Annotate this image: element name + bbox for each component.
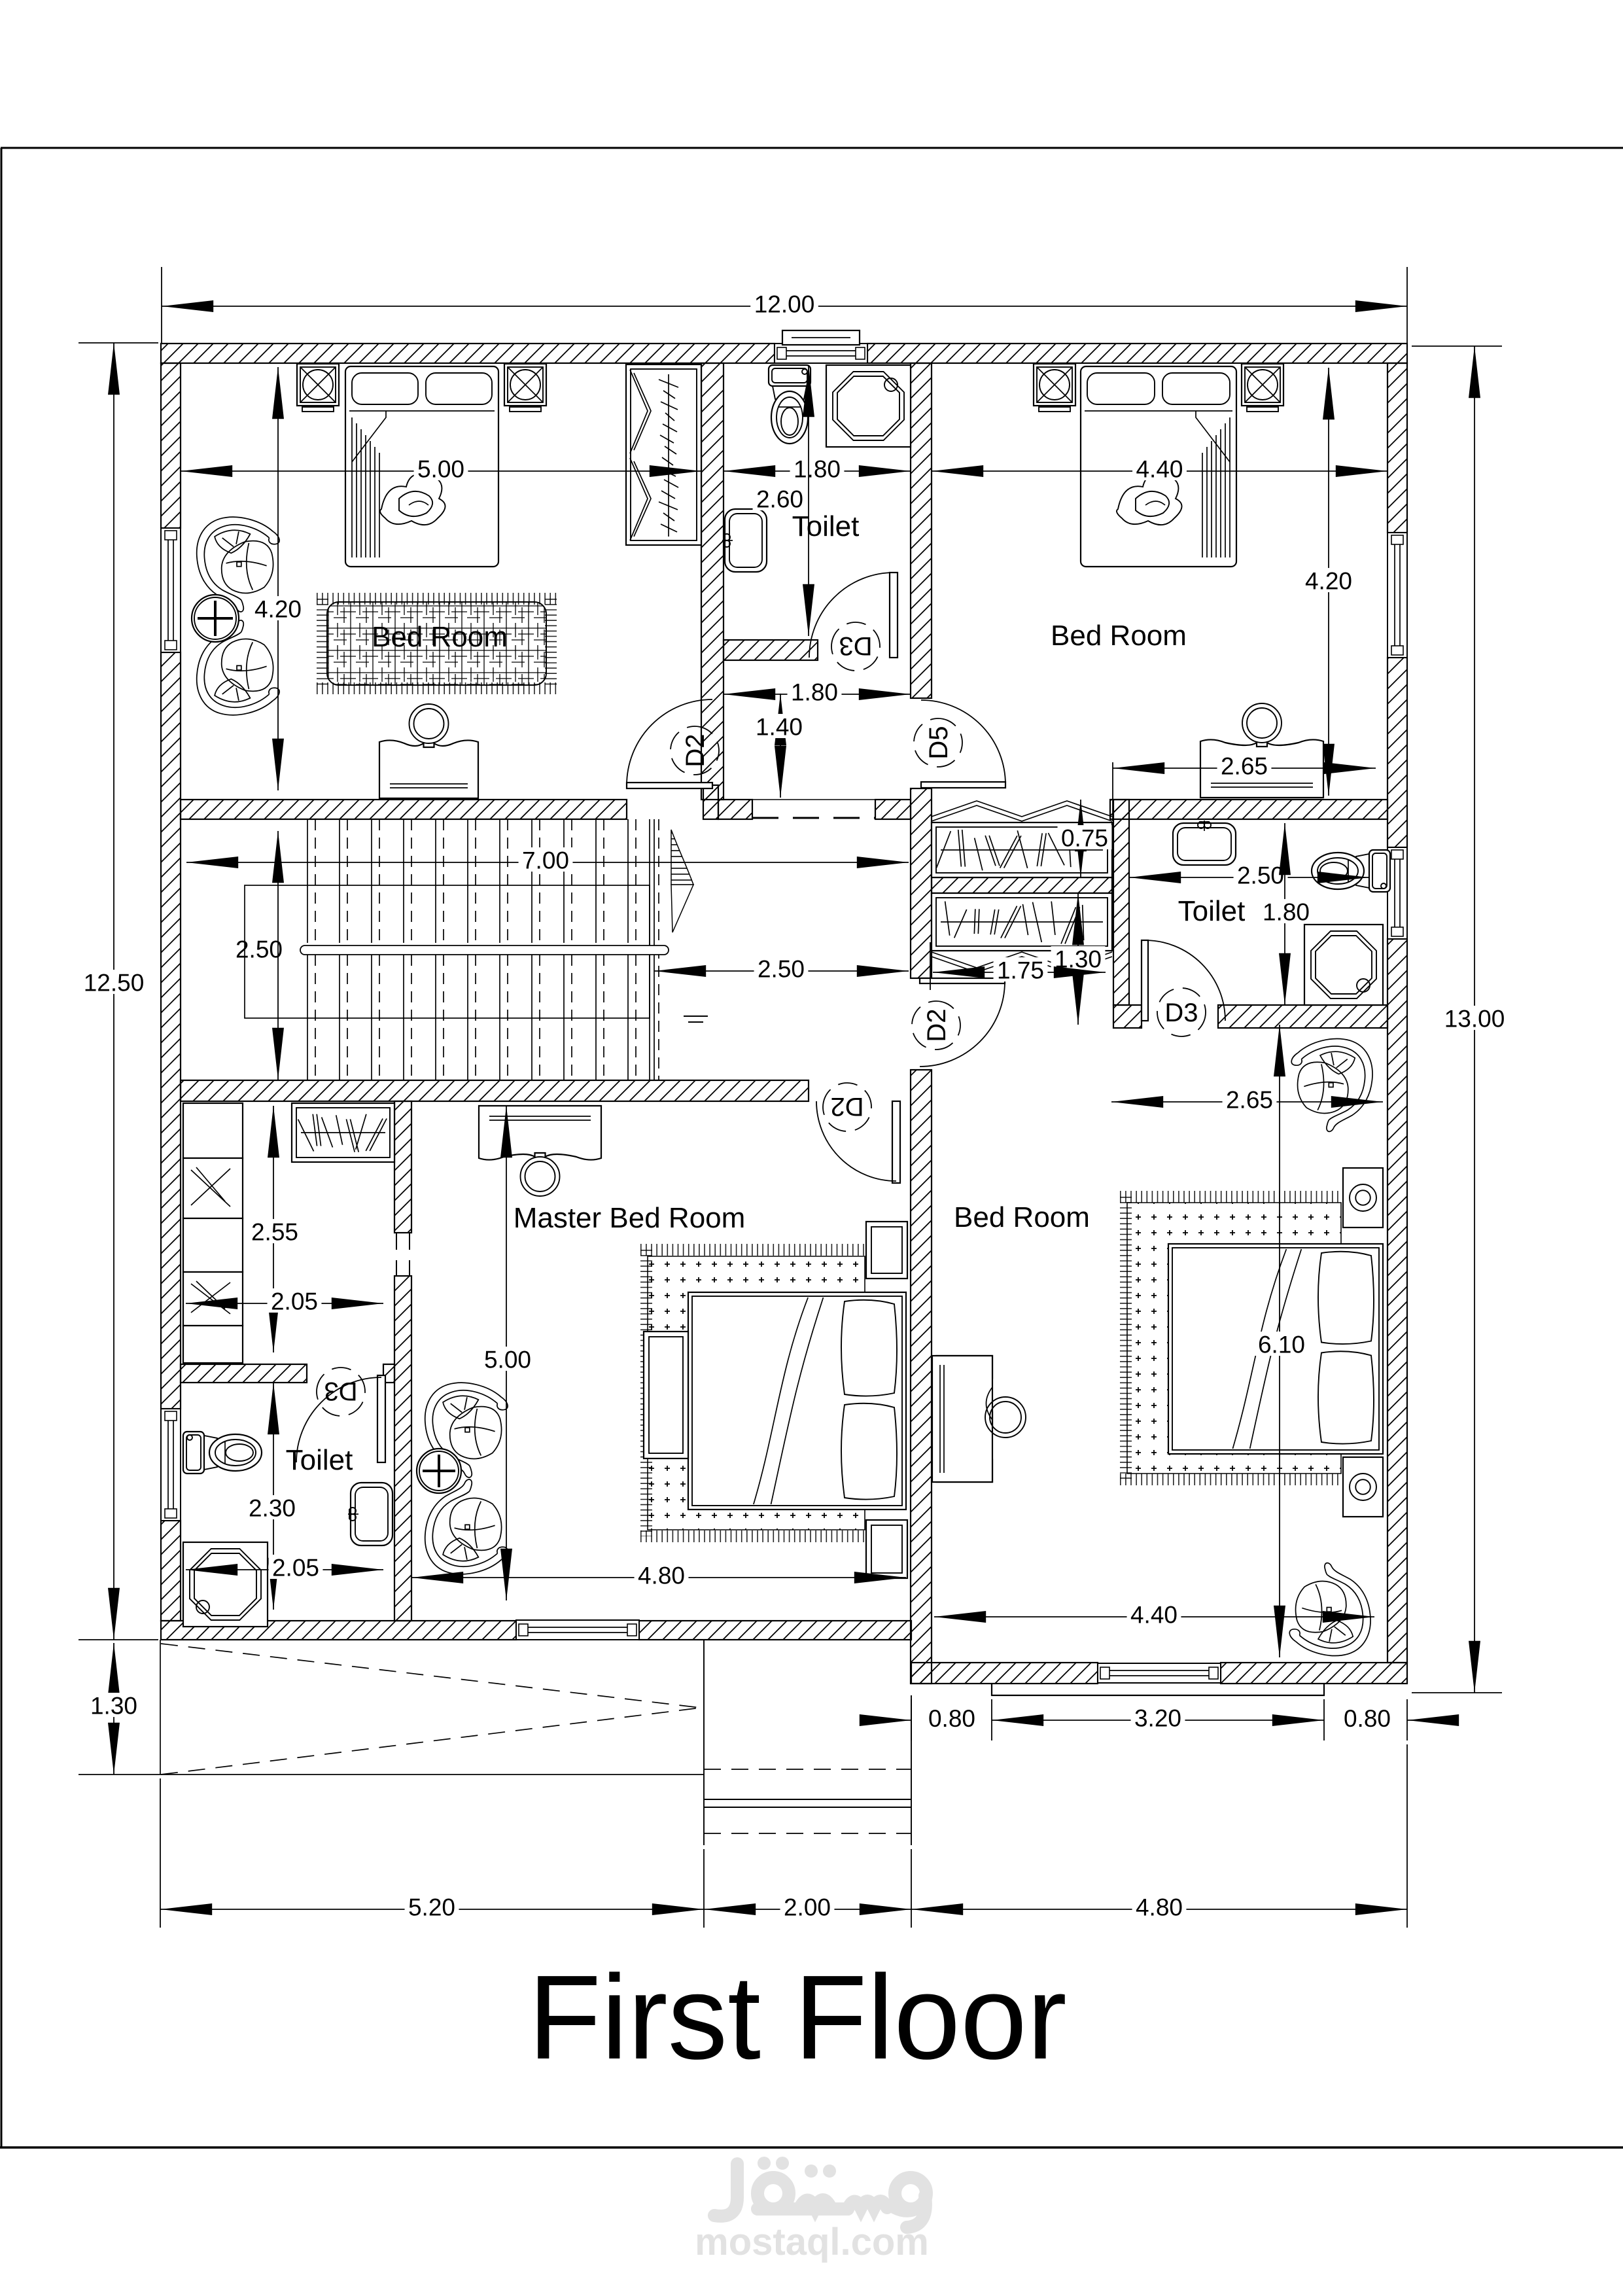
svg-text:1.80: 1.80 [1263, 899, 1310, 926]
svg-text:4.20: 4.20 [254, 596, 302, 623]
svg-text:2.65: 2.65 [1221, 753, 1268, 780]
svg-text:2.60: 2.60 [756, 486, 803, 513]
svg-text:D3: D3 [839, 631, 872, 660]
svg-text:2.50: 2.50 [236, 936, 283, 963]
svg-text:Bed Room: Bed Room [1051, 620, 1187, 652]
svg-text:12.50: 12.50 [84, 970, 145, 997]
svg-text:D5: D5 [924, 726, 953, 759]
svg-text:4.40: 4.40 [1136, 456, 1183, 483]
svg-text:12.00: 12.00 [754, 291, 815, 318]
svg-text:5.00: 5.00 [484, 1347, 531, 1373]
svg-text:1.30: 1.30 [1055, 946, 1102, 973]
svg-text:1.40: 1.40 [756, 714, 803, 741]
svg-text:5.00: 5.00 [417, 456, 464, 483]
svg-text:6.10: 6.10 [1258, 1332, 1305, 1358]
svg-text:D2: D2 [681, 733, 710, 767]
svg-text:1.30: 1.30 [90, 1693, 137, 1720]
svg-text:D2: D2 [922, 1008, 951, 1042]
svg-text:mostaql.com: mostaql.com [695, 2221, 929, 2263]
svg-text:Toilet: Toilet [286, 1444, 353, 1476]
svg-text:0.75: 0.75 [1061, 825, 1108, 852]
svg-text:D3: D3 [1164, 998, 1198, 1027]
svg-text:5.20: 5.20 [408, 1894, 455, 1921]
svg-text:0.80: 0.80 [928, 1705, 975, 1732]
svg-text:2.05: 2.05 [272, 1555, 319, 1581]
svg-text:2.05: 2.05 [271, 1288, 318, 1315]
svg-text:4.20: 4.20 [1305, 568, 1352, 595]
svg-text:Toilet: Toilet [1178, 895, 1246, 927]
svg-text:13.00: 13.00 [1444, 1006, 1505, 1033]
svg-text:4.80: 4.80 [1136, 1894, 1183, 1921]
svg-text:2.50: 2.50 [1237, 862, 1284, 889]
svg-text:D3: D3 [324, 1377, 357, 1405]
svg-text:2.30: 2.30 [249, 1495, 296, 1522]
svg-text:Bed Room: Bed Room [372, 621, 508, 653]
svg-text:4.80: 4.80 [638, 1563, 685, 1589]
svg-text:3.20: 3.20 [1134, 1705, 1181, 1732]
svg-text:D2: D2 [830, 1092, 864, 1121]
svg-text:2.65: 2.65 [1226, 1087, 1273, 1114]
svg-text:Bed Room: Bed Room [954, 1201, 1090, 1233]
svg-text:2.55: 2.55 [251, 1219, 298, 1246]
svg-text:0.80: 0.80 [1344, 1705, 1391, 1732]
svg-text:Master Bed Room: Master Bed Room [514, 1202, 746, 1234]
svg-text:7.00: 7.00 [522, 847, 569, 874]
svg-text:1.75: 1.75 [997, 957, 1044, 984]
svg-text:Toilet: Toilet [792, 510, 860, 542]
svg-text:2.00: 2.00 [784, 1894, 831, 1921]
svg-text:1.80: 1.80 [791, 679, 838, 706]
svg-text:4.40: 4.40 [1130, 1602, 1178, 1629]
svg-text:First Floor: First Floor [528, 1950, 1067, 2084]
svg-text:2.50: 2.50 [758, 956, 805, 983]
svg-text:1.80: 1.80 [794, 456, 841, 483]
